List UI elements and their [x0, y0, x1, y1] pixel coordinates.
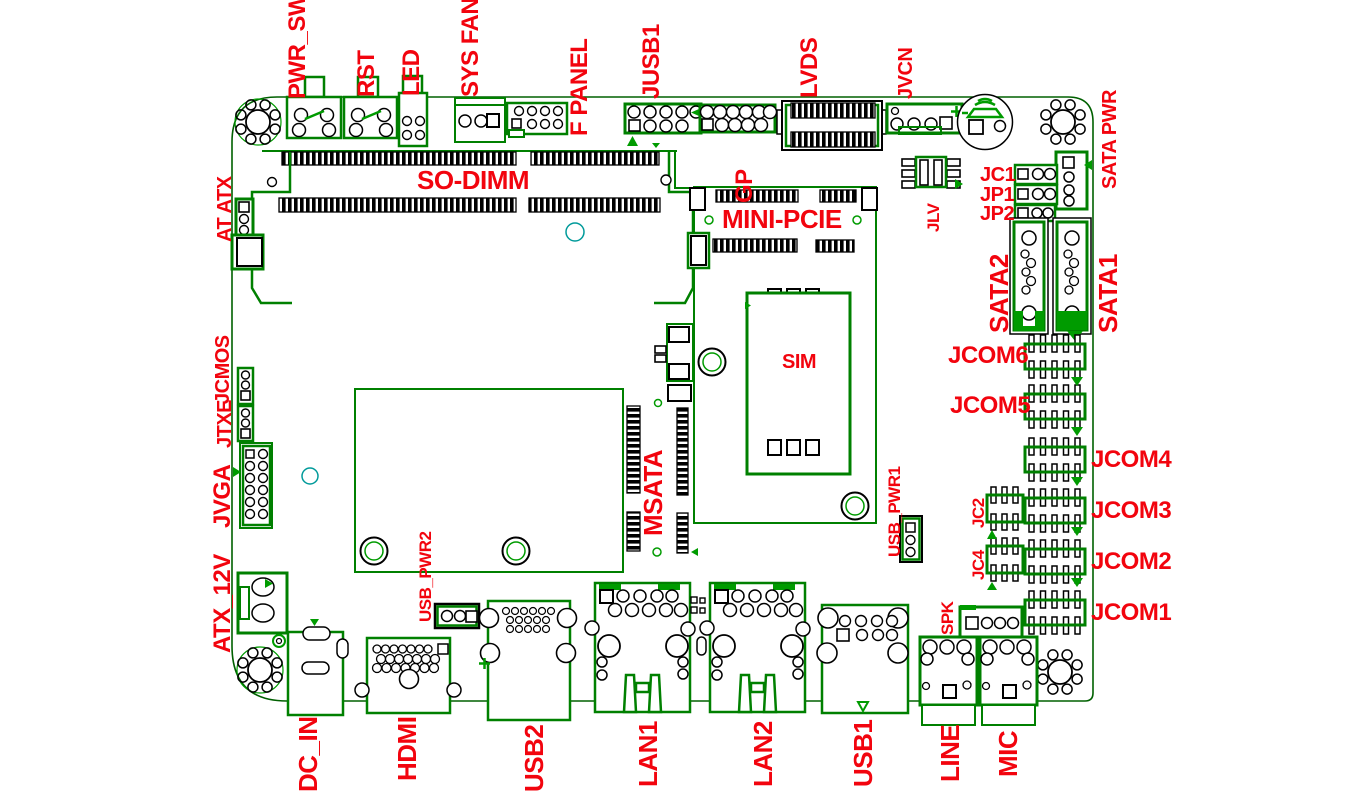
label-led: LED: [400, 50, 424, 97]
motherboard-diagram: PWR_SW RST LED SYS FAN F PANEL JUSB1 GP …: [0, 0, 1360, 800]
label-jcom3: JCOM3: [1091, 499, 1171, 523]
label-sim: SIM: [782, 352, 816, 372]
line-jack: [920, 637, 977, 725]
label-pwr-sw: PWR_SW: [286, 0, 310, 99]
spk-connector: [960, 605, 1022, 637]
label-sys-fan: SYS FAN: [459, 0, 483, 97]
label-jcom2: JCOM2: [1091, 550, 1171, 574]
dc-in-jack: [288, 619, 348, 715]
buzzer: [958, 95, 1013, 150]
label-usb1: USB1: [850, 720, 876, 787]
label-hdmi: HDMI: [394, 717, 420, 781]
label-usb-pwr2: USB_PWR2: [417, 532, 434, 622]
label-jc1: JC1: [980, 165, 1015, 185]
jvga-header: [233, 443, 272, 528]
label-at-atx: AT ATX: [215, 176, 235, 242]
label-jlv: JLV: [925, 204, 942, 232]
label-jcmos: JCMOS: [213, 335, 233, 404]
jcom4-header: [1025, 438, 1085, 481]
usb1-port: [817, 605, 908, 713]
label-jtxe: JTXE: [215, 400, 235, 448]
label-jvga: JVGA: [211, 465, 235, 528]
jtxe-header: [238, 406, 253, 441]
label-so-dimm: SO-DIMM: [417, 167, 529, 193]
label-jp1: JP1: [980, 185, 1014, 205]
jvcn-connector: [887, 104, 962, 134]
label-jc4: JC4: [970, 550, 987, 580]
jlv-ic: [902, 157, 963, 189]
label-msata: MSATA: [640, 450, 666, 536]
gp-header: [700, 105, 777, 132]
label-usb2: USB2: [521, 725, 547, 792]
jcom5-header: [1025, 385, 1085, 428]
hdmi-port: [355, 638, 461, 713]
jcom3-header: [1025, 489, 1085, 532]
label-jcom4: JCOM4: [1091, 448, 1171, 472]
label-jcom6: JCOM6: [948, 344, 1028, 368]
label-dc-in: DC_IN: [295, 716, 321, 792]
label-sata2: SATA2: [986, 254, 1012, 333]
label-mini-pcie: MINI-PCIE: [722, 206, 842, 232]
label-jcom5: JCOM5: [950, 394, 1030, 418]
jc2-header: [987, 487, 1023, 530]
mic-jack: [980, 637, 1037, 725]
sata1-connector: [1053, 218, 1091, 341]
board-graphics: [0, 0, 1360, 800]
label-jc2: JC2: [970, 498, 987, 528]
label-usb-pwr1: USB_PWR1: [886, 467, 903, 557]
sata-pwr-connector: [1056, 152, 1092, 209]
usb2-port: [479, 601, 577, 720]
label-lan1: LAN1: [635, 721, 661, 787]
at-atx-header: [232, 199, 263, 269]
lvds-connector: [777, 101, 886, 150]
label-atx-12v: ATX_12V: [211, 554, 235, 653]
label-spk: SPK: [939, 602, 956, 635]
label-rst: RST: [355, 51, 379, 98]
label-jp2: JP2: [980, 204, 1014, 224]
jcmos-header: [238, 368, 253, 404]
label-mic: MIC: [995, 731, 1021, 777]
label-sata1: SATA1: [1095, 254, 1121, 333]
jcom2-header: [1025, 540, 1085, 583]
lan1-port: [585, 583, 695, 712]
sys-fan-connector: [455, 98, 505, 142]
label-jvcn: JVCN: [896, 48, 916, 99]
label-lvds: LVDS: [798, 38, 822, 98]
label-gp: GP: [733, 169, 757, 203]
label-jusb1: JUSB1: [640, 24, 664, 99]
label-lan2: LAN2: [750, 721, 776, 787]
label-line: LINE: [937, 725, 963, 782]
usb-pwr2-connector: [435, 604, 479, 628]
jcom1-header: [1025, 591, 1085, 634]
jp1-jumper: [1015, 185, 1057, 204]
lan2-port: [700, 583, 810, 712]
label-f-panel: F PANEL: [568, 39, 592, 136]
jc4-header: [987, 538, 1023, 581]
jusb1-connector: [625, 104, 702, 148]
label-jcom1: JCOM1: [1091, 601, 1171, 625]
atx-12v-connector: [238, 573, 287, 647]
jcom6-header: [1025, 335, 1085, 378]
jc1-jumper: [1015, 165, 1057, 184]
label-sata-pwr: SATA PWR: [1100, 90, 1120, 189]
sata2-connector: [1010, 218, 1048, 334]
f-panel-connector: [507, 103, 567, 137]
